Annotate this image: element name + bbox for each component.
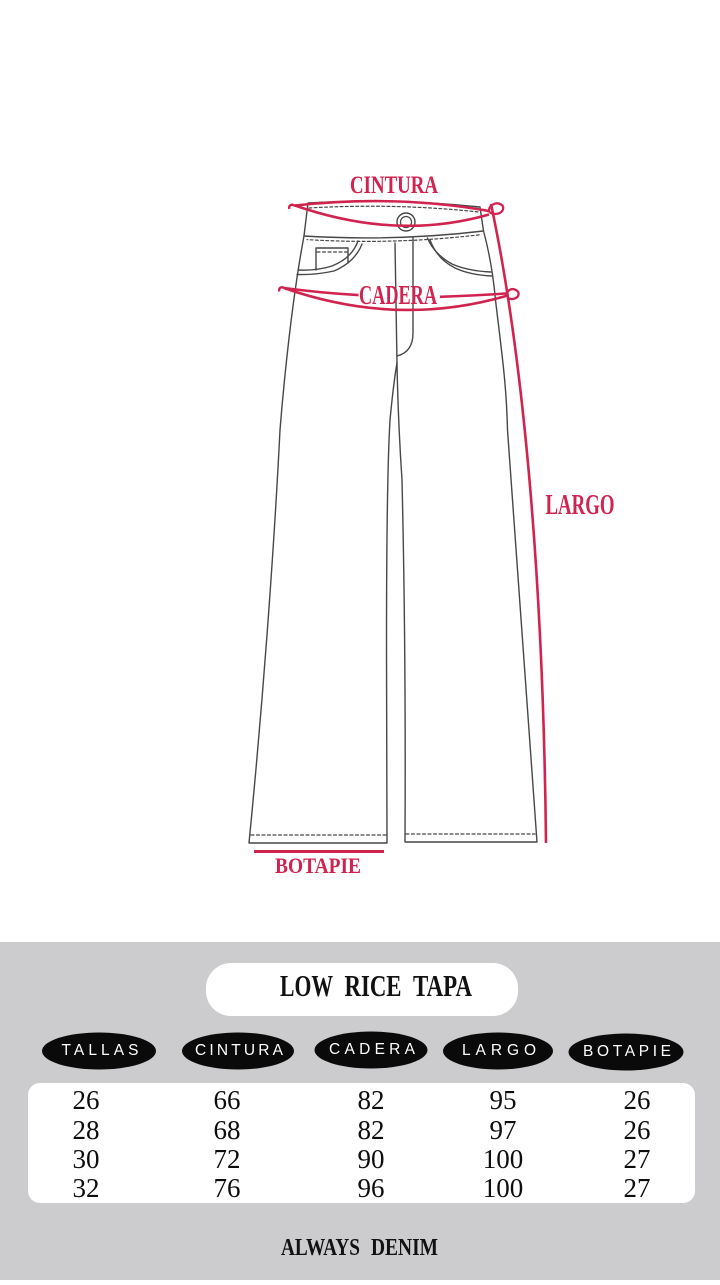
svg-text:ALWAYS: ALWAYS [281, 1235, 360, 1261]
svg-text:26: 26 [624, 1115, 651, 1145]
svg-text:27: 27 [624, 1144, 651, 1174]
svg-text:68: 68 [214, 1115, 241, 1145]
svg-text:30: 30 [73, 1144, 100, 1174]
svg-text:CINTURA: CINTURA [350, 172, 438, 199]
svg-text:TAPA: TAPA [413, 968, 472, 1003]
svg-text:76: 76 [214, 1173, 241, 1203]
svg-text:DENIM: DENIM [371, 1235, 438, 1261]
svg-text:LOW: LOW [280, 968, 333, 1003]
svg-text:82: 82 [358, 1115, 385, 1145]
svg-text:100: 100 [483, 1173, 524, 1203]
svg-text:27: 27 [624, 1173, 651, 1203]
svg-text:100: 100 [483, 1144, 524, 1174]
svg-text:95: 95 [490, 1085, 517, 1115]
svg-text:72: 72 [214, 1144, 241, 1174]
svg-text:26: 26 [624, 1085, 651, 1115]
svg-text:82: 82 [358, 1085, 385, 1115]
svg-text:CADERA: CADERA [359, 280, 437, 310]
svg-text:BOTAPIE: BOTAPIE [275, 853, 361, 878]
svg-text:90: 90 [358, 1144, 385, 1174]
svg-text:96: 96 [358, 1173, 385, 1203]
svg-text:LARGO: LARGO [546, 490, 615, 521]
svg-text:28: 28 [73, 1115, 100, 1145]
svg-text:26: 26 [73, 1085, 100, 1115]
svg-text:RICE: RICE [345, 968, 402, 1003]
svg-text:66: 66 [214, 1085, 241, 1115]
svg-text:32: 32 [73, 1173, 100, 1203]
svg-text:97: 97 [490, 1115, 517, 1145]
